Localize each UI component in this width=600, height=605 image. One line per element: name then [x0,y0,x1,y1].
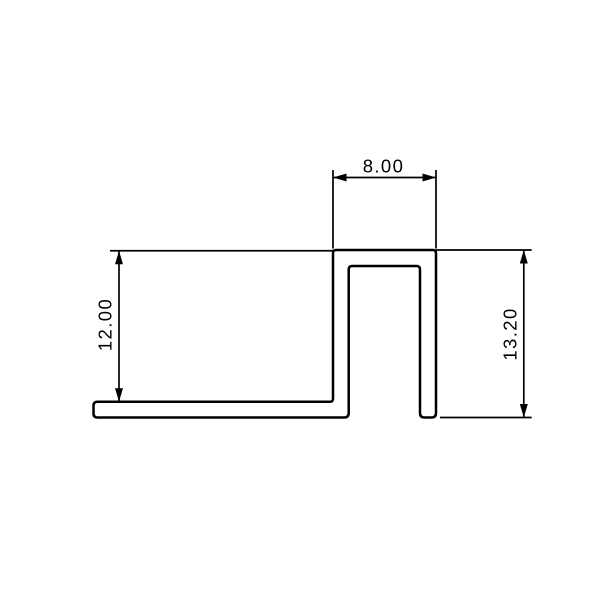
svg-text:12.00: 12.00 [95,298,116,351]
svg-text:13.20: 13.20 [500,307,521,360]
svg-text:8.00: 8.00 [363,156,405,177]
